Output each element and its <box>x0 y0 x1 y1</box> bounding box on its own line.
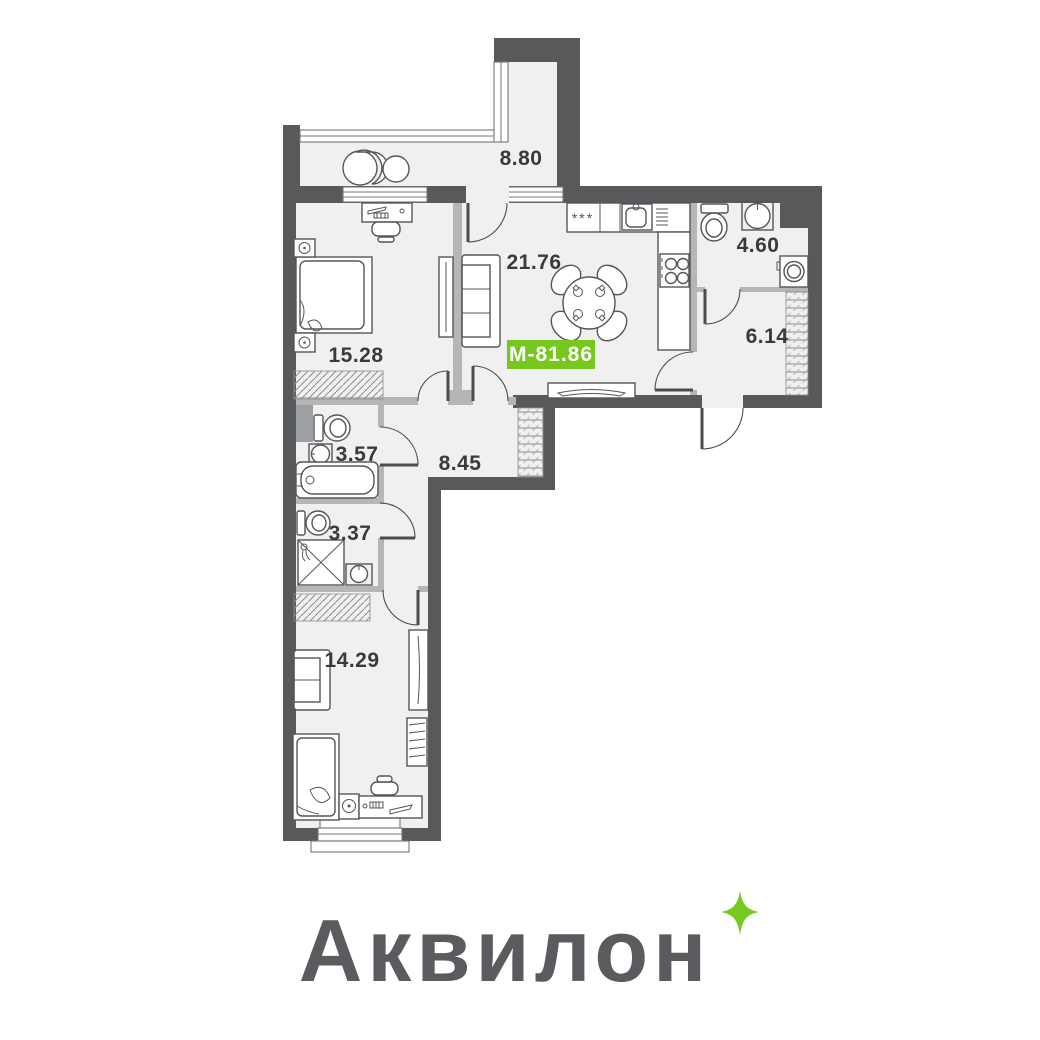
room-area-label-hall: 6.14 <box>746 325 789 348</box>
room-area-label-bathroom: 4.60 <box>737 234 780 257</box>
freezer-symbol: *** <box>572 210 594 226</box>
wardrobe-icon <box>294 371 383 399</box>
balcony-table-icon <box>383 156 409 182</box>
floor-plan-page: 8.80 21.76 4.60 6.14 15.28 3.57 8.45 3.3… <box>0 0 1040 1040</box>
entrance-door <box>702 408 743 449</box>
shelf-icon <box>407 718 427 766</box>
wc-toilet-icon <box>314 415 350 441</box>
room-area-label-bedroom2: 14.29 <box>324 649 379 672</box>
balcony-door-opening <box>466 186 509 203</box>
sparkle-icon <box>721 891 759 935</box>
balcony-chair-icon <box>343 150 388 185</box>
utility-shaft <box>296 405 313 442</box>
shower-icon <box>298 540 344 585</box>
kitchen-window <box>507 187 563 202</box>
nightstand-icon <box>294 333 315 352</box>
logo-text: Аквилон <box>299 901 711 1000</box>
single-bed-icon <box>293 734 339 820</box>
room-area-label-balcony: 8.80 <box>500 147 543 170</box>
nightstand2-icon <box>339 794 359 819</box>
room-area-label-corridor: 8.45 <box>439 452 482 475</box>
logo: Аквилон <box>299 891 759 1000</box>
bathtub-icon <box>296 462 378 498</box>
toilet-icon <box>701 204 728 241</box>
room-area-label-kitchen-living: 21.76 <box>506 251 561 274</box>
desk2-icon <box>359 796 422 818</box>
room-area-label-wc: 3.57 <box>336 443 379 466</box>
sofa-icon <box>462 255 500 347</box>
room-area-label-bedroom: 15.28 <box>328 344 383 367</box>
entrance-opening <box>702 395 743 408</box>
nightstand-icon <box>294 239 315 257</box>
wardrobe2-icon <box>294 594 370 621</box>
washing-machine-icon <box>777 256 808 287</box>
bedroom2-window <box>311 818 409 852</box>
badge-label: М-81.86 <box>509 343 593 366</box>
bedroom-console-icon <box>439 257 453 337</box>
balcony-floor-upper <box>508 60 557 142</box>
floor-plan: 8.80 21.76 4.60 6.14 15.28 3.57 8.45 3.3… <box>0 0 1040 1040</box>
bed-icon <box>296 257 372 333</box>
room-area-label-shower-room: 3.37 <box>329 522 372 545</box>
bedroom-window <box>343 187 427 202</box>
corridor-wardrobe-icon <box>518 408 543 477</box>
tall-wardrobe-icon <box>409 630 428 710</box>
toilet2-icon <box>297 511 330 535</box>
desk-icon <box>362 203 412 222</box>
hall-wardrobe-icon <box>786 292 808 395</box>
tv-console-icon <box>548 383 635 398</box>
balcony-glazing <box>300 62 508 142</box>
total-area-badge: М-81.86 <box>507 340 595 369</box>
